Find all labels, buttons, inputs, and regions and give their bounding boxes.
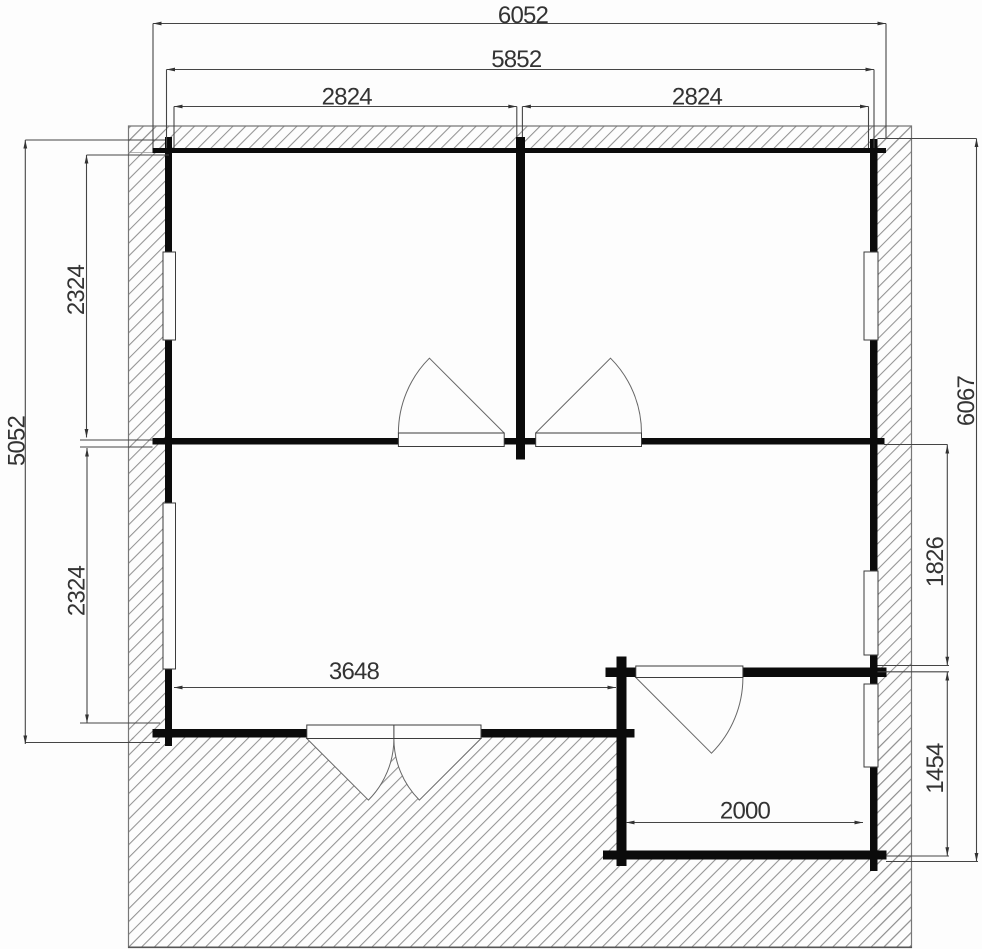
svg-text:6052: 6052 [498,2,549,29]
svg-text:6067: 6067 [953,375,980,426]
svg-text:2324: 2324 [63,264,90,315]
svg-text:5052: 5052 [3,415,30,466]
svg-text:2824: 2824 [322,83,373,110]
svg-text:5852: 5852 [491,46,542,73]
svg-text:1454: 1454 [922,743,949,794]
svg-text:2000: 2000 [720,797,771,824]
svg-text:3648: 3648 [329,658,380,685]
svg-text:2824: 2824 [672,83,723,110]
svg-text:1826: 1826 [922,536,949,587]
svg-text:2324: 2324 [64,565,91,616]
